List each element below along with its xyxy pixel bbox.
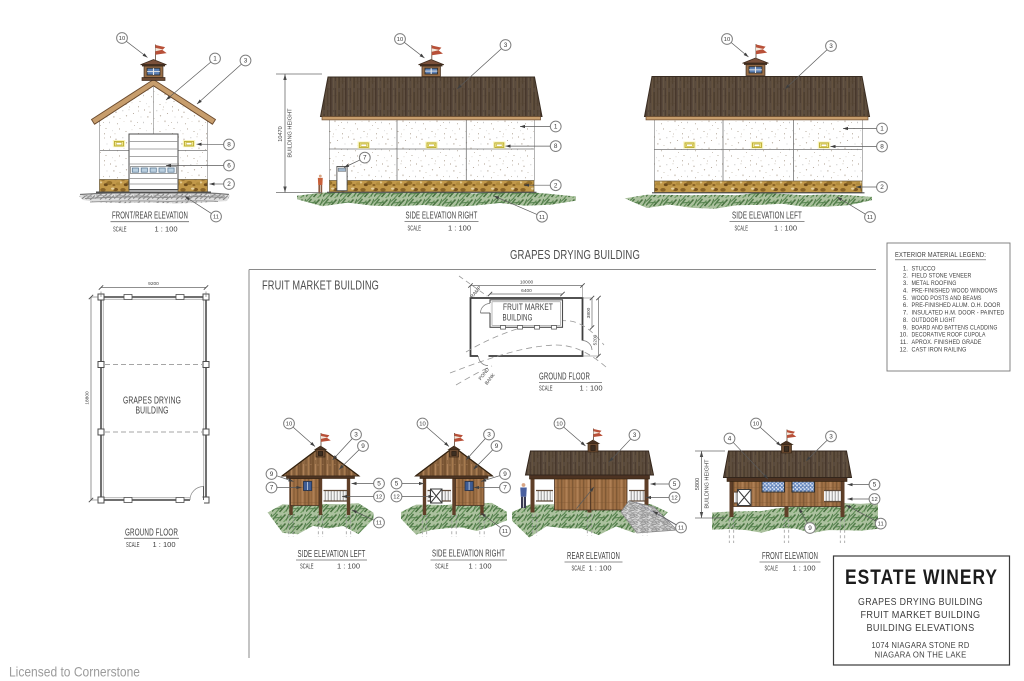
svg-text:6400: 6400 [521,288,532,294]
svg-text:8.: 8. [903,317,908,324]
svg-text:Licensed to Cornerstone: Licensed to Cornerstone [9,665,140,680]
svg-text:1074 NIAGARA STONE RD: 1074 NIAGARA STONE RD [872,640,970,650]
svg-text:9: 9 [270,471,274,478]
svg-text:10000: 10000 [520,280,534,286]
svg-text:10: 10 [724,37,730,43]
svg-text:3800: 3800 [586,307,592,318]
svg-text:BUILDING ELEVATIONS: BUILDING ELEVATIONS [867,622,975,634]
svg-text:1 : 100: 1 : 100 [793,564,816,573]
svg-text:BUILDING HEIGHT: BUILDING HEIGHT [705,459,711,509]
svg-text:SIDE ELEVATION LEFT: SIDE ELEVATION LEFT [732,211,802,222]
svg-text:1: 1 [213,56,217,63]
svg-text:12: 12 [393,495,399,501]
svg-text:PRE-FINISHED WOOD WINDOWS: PRE-FINISHED WOOD WINDOWS [912,287,998,294]
svg-text:8: 8 [880,144,884,151]
svg-text:11: 11 [502,529,508,535]
svg-text:10: 10 [119,36,125,42]
svg-text:11: 11 [878,522,884,528]
svg-text:2: 2 [880,184,884,191]
svg-text:APROX. FINISHED GRADE: APROX. FINISHED GRADE [912,339,982,346]
svg-text:5.: 5. [903,295,908,302]
svg-text:18800: 18800 [85,391,91,405]
svg-text:SCALE: SCALE [539,384,553,393]
svg-text:10: 10 [419,422,425,428]
svg-text:DECORATIVE ROOF CUPOLA: DECORATIVE ROOF CUPOLA [912,332,987,339]
svg-text:WOOD POSTS AND BEAMS: WOOD POSTS AND BEAMS [912,295,982,302]
svg-text:BUILDING HEIGHT: BUILDING HEIGHT [288,108,294,158]
svg-text:6: 6 [227,163,231,170]
svg-text:1 : 100: 1 : 100 [153,540,176,549]
svg-text:9: 9 [808,525,812,532]
svg-text:5: 5 [377,481,381,488]
svg-text:9: 9 [361,443,365,450]
svg-text:3: 3 [504,42,508,49]
svg-text:10: 10 [753,422,759,428]
svg-text:3: 3 [354,432,358,439]
svg-text:STUCCO: STUCCO [912,265,936,272]
svg-text:1 : 100: 1 : 100 [589,564,612,573]
svg-text:PRE-FINISHED ALUM. O.H. DOOR: PRE-FINISHED ALUM. O.H. DOOR [912,302,1001,309]
svg-text:SCALE: SCALE [408,224,422,233]
svg-text:REAR ELEVATION: REAR ELEVATION [567,551,620,562]
svg-text:3: 3 [487,432,491,439]
svg-text:2: 2 [554,182,558,189]
svg-text:FIELD STONE VENEER: FIELD STONE VENEER [912,273,972,280]
svg-text:2: 2 [227,181,231,188]
svg-text:10: 10 [397,37,403,43]
svg-text:5200: 5200 [593,334,599,345]
svg-text:8: 8 [554,143,558,150]
svg-text:SCALE: SCALE [300,562,314,571]
svg-text:BOARD AND BATTENS CLADDING: BOARD AND BATTENS CLADDING [912,324,998,331]
svg-text:11: 11 [376,521,382,527]
svg-text:5800: 5800 [695,478,701,490]
svg-text:3: 3 [244,58,248,65]
svg-text:FRUIT MARKET: FRUIT MARKET [503,302,553,313]
svg-text:12.: 12. [900,346,909,353]
svg-text:1.: 1. [903,265,908,272]
svg-text:GROUND FLOOR: GROUND FLOOR [125,528,178,539]
svg-text:3.: 3. [903,280,908,287]
svg-text:11: 11 [678,526,684,532]
svg-text:10.: 10. [900,332,909,339]
svg-text:1 : 100: 1 : 100 [448,224,471,233]
svg-text:12: 12 [671,496,677,502]
svg-text:SIDE ELEVATION RIGHT: SIDE ELEVATION RIGHT [432,549,505,560]
svg-text:7: 7 [363,155,367,162]
svg-text:FRUIT MARKET BUILDING: FRUIT MARKET BUILDING [262,278,379,293]
svg-text:9: 9 [495,443,499,450]
svg-text:4.: 4. [903,287,908,294]
svg-text:9200: 9200 [148,281,159,287]
svg-text:SCALE: SCALE [765,564,779,573]
svg-text:9: 9 [503,471,507,478]
svg-text:SCALE: SCALE [126,540,140,549]
svg-text:GROUND FLOOR: GROUND FLOOR [539,372,590,383]
svg-text:SCALE: SCALE [435,562,449,571]
svg-text:1: 1 [554,124,558,131]
svg-text:5: 5 [395,481,399,488]
svg-text:9.: 9. [903,324,908,331]
svg-text:3: 3 [633,432,637,439]
svg-text:1: 1 [880,126,884,133]
svg-text:METAL ROOFING: METAL ROOFING [912,280,957,287]
svg-text:12: 12 [376,495,382,501]
svg-text:1 : 100: 1 : 100 [774,224,797,233]
svg-text:11.: 11. [900,339,908,346]
svg-text:5: 5 [673,481,677,488]
svg-text:1 : 100: 1 : 100 [469,562,492,571]
svg-text:SIDE ELEVATION RIGHT: SIDE ELEVATION RIGHT [406,211,478,222]
svg-text:GRAPES DRYING BUILDING: GRAPES DRYING BUILDING [858,596,983,608]
svg-text:6.: 6. [903,302,908,309]
svg-text:SCALE: SCALE [572,564,586,573]
svg-text:10: 10 [556,422,562,428]
svg-text:OUTDOOR LIGHT: OUTDOOR LIGHT [912,317,956,324]
svg-text:CAST IRON RAILING: CAST IRON RAILING [912,346,967,353]
svg-text:ESTATE WINERY: ESTATE WINERY [845,566,998,589]
svg-text:7.: 7. [903,310,908,317]
svg-text:1 : 100: 1 : 100 [580,384,603,393]
svg-text:11: 11 [213,215,219,221]
svg-text:10: 10 [286,422,292,428]
svg-text:SCALE: SCALE [113,225,127,234]
svg-text:BUILDING: BUILDING [136,405,169,417]
svg-text:NIAGARA ON THE LAKE: NIAGARA ON THE LAKE [875,650,967,660]
svg-text:GRAPES DRYING BUILDING: GRAPES DRYING BUILDING [510,247,640,262]
svg-text:11: 11 [867,215,873,221]
svg-text:SCALE: SCALE [735,224,749,233]
svg-text:BUILDING: BUILDING [503,313,533,324]
svg-text:INSULATED H.M. DOOR - PAINTED: INSULATED H.M. DOOR - PAINTED [912,310,1005,317]
svg-text:8: 8 [227,142,231,149]
svg-text:4: 4 [728,436,732,443]
svg-text:FRUIT MARKET BUILDING: FRUIT MARKET BUILDING [861,609,981,621]
svg-text:2.: 2. [903,273,908,280]
svg-text:EXTERIOR MATERIAL LEGEND:: EXTERIOR MATERIAL LEGEND: [895,252,986,259]
svg-text:FRONT/REAR ELEVATION: FRONT/REAR ELEVATION [112,211,188,222]
svg-text:1 : 100: 1 : 100 [337,562,360,571]
svg-text:SIDE ELEVATION LEFT: SIDE ELEVATION LEFT [298,549,366,560]
svg-text:3: 3 [829,434,833,441]
svg-text:5: 5 [873,482,877,489]
svg-text:1 : 100: 1 : 100 [155,225,178,234]
svg-text:7: 7 [503,485,507,492]
svg-text:FRONT ELEVATION: FRONT ELEVATION [762,551,818,562]
svg-text:3: 3 [829,43,833,50]
svg-text:7: 7 [270,485,274,492]
svg-text:11: 11 [539,215,545,221]
svg-text:12: 12 [871,497,877,503]
svg-text:10470: 10470 [278,126,284,142]
